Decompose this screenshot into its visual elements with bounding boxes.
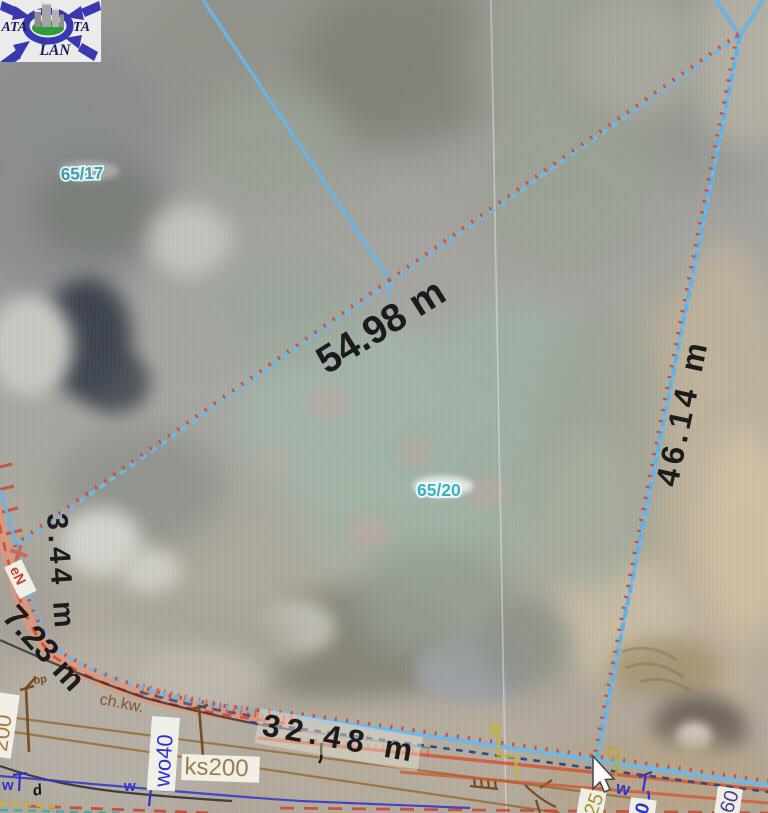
svg-text:w: w (1, 777, 14, 794)
svg-text:d: d (31, 781, 45, 800)
svg-text:3.44 m: 3.44 m (40, 512, 81, 633)
svg-text:TA: TA (73, 20, 90, 35)
svg-text:ks200: ks200 (184, 753, 249, 782)
svg-text:200: 200 (0, 713, 17, 753)
svg-text:ATA: ATA (1, 20, 28, 35)
svg-text:46.14 m: 46.14 m (649, 335, 715, 490)
svg-text:65/20: 65/20 (417, 480, 461, 500)
svg-text:wo40: wo40 (149, 734, 178, 789)
svg-text:54.98 m: 54.98 m (309, 270, 453, 382)
svg-text:65/17: 65/17 (60, 164, 103, 184)
svg-text:LAN: LAN (39, 42, 72, 59)
svg-text:w: w (123, 778, 136, 795)
